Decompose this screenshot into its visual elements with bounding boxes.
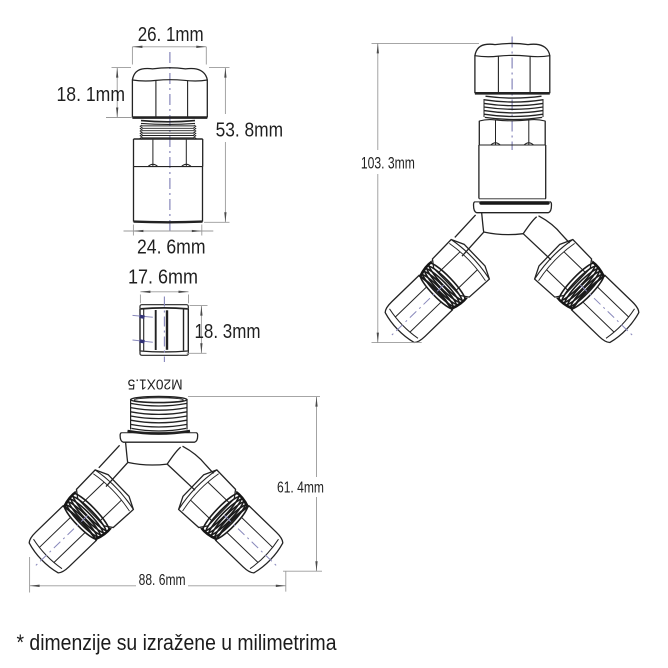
- svg-text:17. 6mm: 17. 6mm: [128, 267, 198, 289]
- svg-text:* dimenzije su izražene u mili: * dimenzije su izražene u milimetrima: [17, 630, 338, 655]
- svg-text:61. 4mm: 61. 4mm: [277, 480, 324, 497]
- svg-text:88. 6mm: 88. 6mm: [139, 572, 186, 589]
- svg-text:24. 6mm: 24. 6mm: [137, 237, 206, 259]
- svg-text:18. 3mm: 18. 3mm: [195, 321, 261, 343]
- svg-text:103. 3mm: 103. 3mm: [361, 155, 415, 173]
- svg-text:18. 1mm: 18. 1mm: [57, 84, 126, 106]
- svg-text:53. 8mm: 53. 8mm: [216, 120, 284, 142]
- svg-text:M20X1.5: M20X1.5: [128, 376, 183, 392]
- svg-text:26. 1mm: 26. 1mm: [138, 24, 204, 46]
